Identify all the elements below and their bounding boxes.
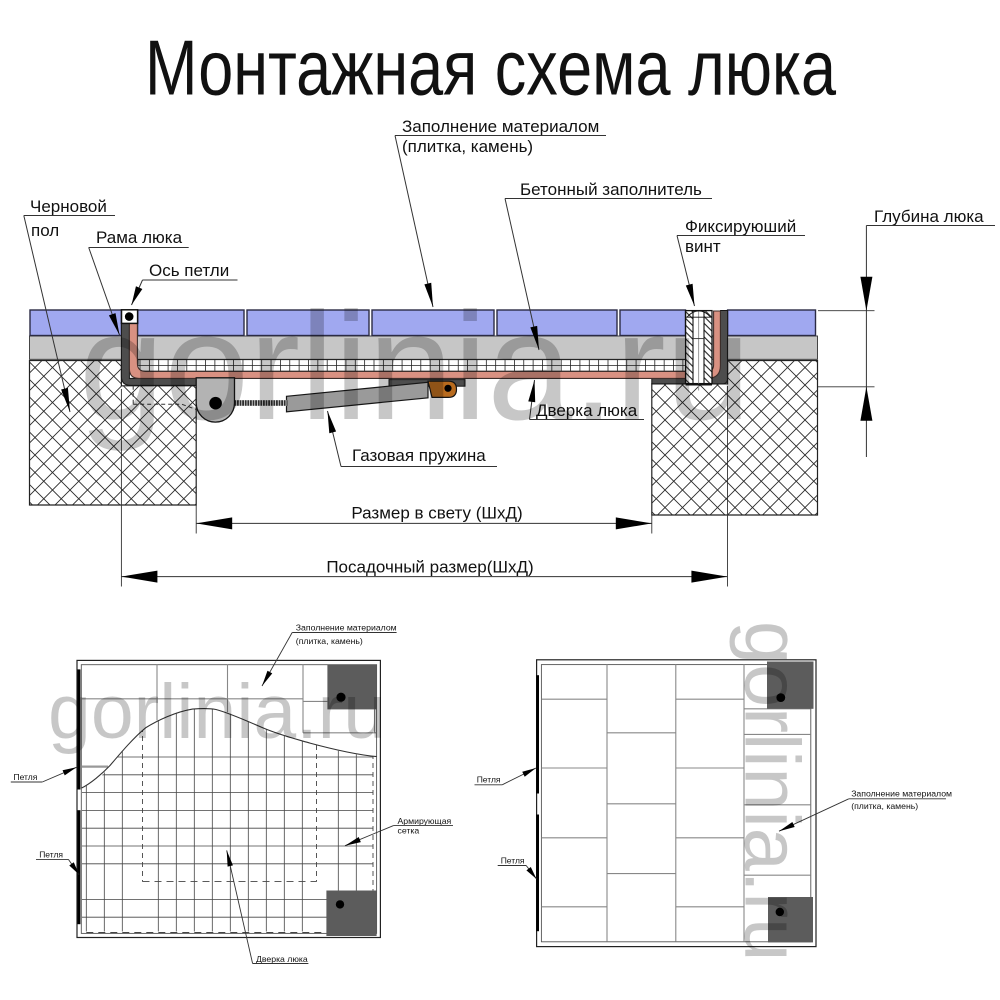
svg-text:Посадочный размер(ШхД): Посадочный размер(ШхД)	[326, 558, 533, 577]
svg-text:Размер в свету (ШхД): Размер в свету (ШхД)	[351, 504, 522, 523]
svg-text:винт: винт	[685, 237, 721, 256]
svg-text:Ось петли: Ось петли	[149, 261, 229, 280]
svg-text:Черновой: Черновой	[30, 197, 107, 216]
svg-text:Петля: Петля	[477, 775, 501, 785]
svg-text:Бетонный заполнитель: Бетонный заполнитель	[520, 180, 702, 199]
svg-text:Заполнение материалом: Заполнение материалом	[296, 623, 397, 633]
svg-text:gorlinia.ru: gorlinia.ru	[79, 281, 751, 452]
svg-text:Заполнение материалом: Заполнение материалом	[851, 788, 952, 798]
svg-text:Петля: Петля	[501, 856, 525, 866]
svg-text:(плитка, камень): (плитка, камень)	[296, 636, 363, 646]
svg-text:Петля: Петля	[14, 772, 38, 782]
svg-text:gorlinia.ru: gorlinia.ru	[729, 621, 815, 961]
svg-text:Глубина люка: Глубина люка	[874, 207, 984, 226]
svg-text:(плитка, камень): (плитка, камень)	[851, 801, 918, 811]
svg-text:Монтажная схема люка: Монтажная схема люка	[145, 26, 837, 112]
svg-text:gorlinia.ru: gorlinia.ru	[48, 669, 386, 755]
svg-text:Петля: Петля	[39, 850, 63, 860]
svg-text:пол: пол	[31, 221, 59, 240]
svg-text:(плитка, камень): (плитка, камень)	[402, 137, 533, 156]
svg-text:Заполнение материалом: Заполнение материалом	[402, 117, 599, 136]
svg-text:Дверка люка: Дверка люка	[256, 954, 308, 964]
svg-text:Армирующая: Армирующая	[398, 816, 452, 826]
svg-text:Рама люка: Рама люка	[96, 228, 183, 247]
svg-text:сетка: сетка	[398, 826, 420, 836]
svg-text:Фиксируюший: Фиксируюший	[685, 217, 796, 236]
